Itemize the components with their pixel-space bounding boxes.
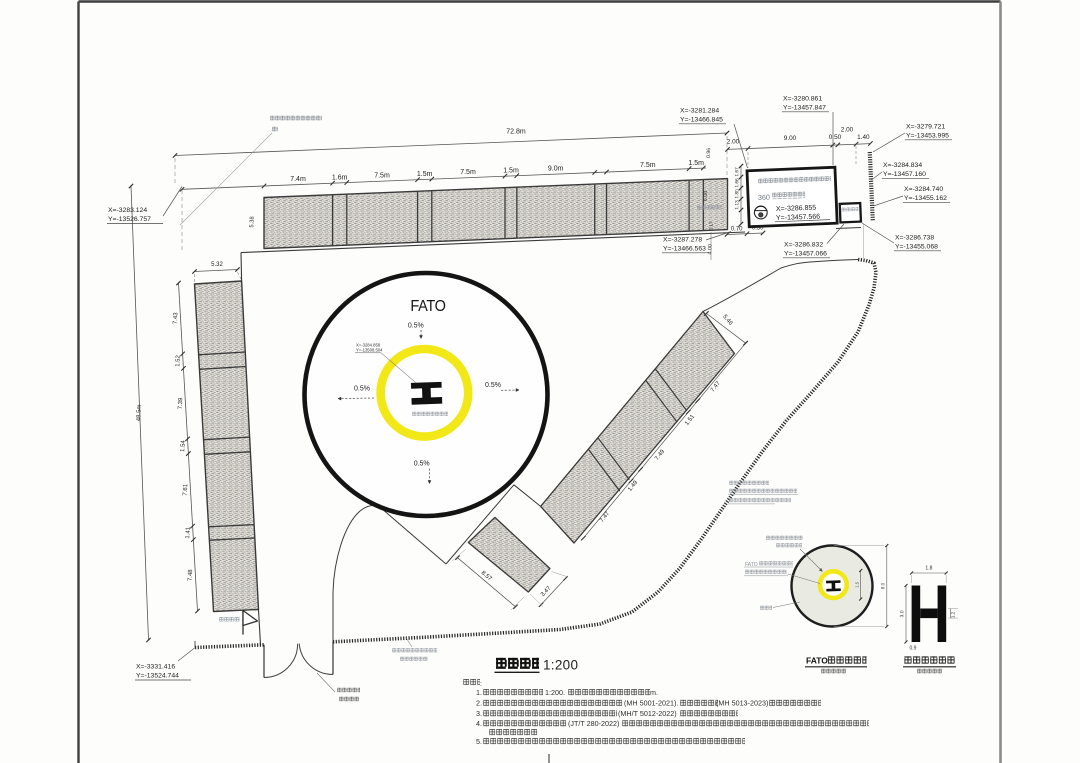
svg-text:48.5m: 48.5m	[136, 404, 143, 421]
svg-text:1.66: 1.66	[734, 178, 740, 188]
svg-text:7.48: 7.48	[188, 569, 195, 582]
svg-text:7.5m: 7.5m	[460, 169, 476, 176]
svg-text:2.00: 2.00	[841, 127, 854, 134]
svg-text:X=-3281.284: X=-3281.284	[680, 108, 719, 115]
svg-text:0.5%: 0.5%	[414, 461, 430, 468]
svg-text:1.5m: 1.5m	[417, 171, 433, 178]
svg-text:1.6m: 1.6m	[332, 174, 348, 181]
svg-text:1.8: 1.8	[925, 566, 932, 572]
svg-text:Y=-13455.068: Y=-13455.068	[895, 243, 938, 250]
svg-text:0.50: 0.50	[829, 134, 842, 141]
svg-text:7.39: 7.39	[178, 397, 185, 410]
svg-text:4.: 4.	[476, 719, 482, 728]
svg-text:X=-3286.738: X=-3286.738	[895, 235, 934, 242]
svg-text:Y=-13457.160: Y=-13457.160	[883, 171, 926, 178]
svg-text:Y=-13455.162: Y=-13455.162	[904, 195, 947, 202]
svg-text:0.5%: 0.5%	[354, 386, 370, 393]
svg-text:1:200: 1:200	[543, 658, 578, 673]
svg-text:(MH 5013-2023): (MH 5013-2023)	[716, 699, 768, 708]
svg-text:1.54: 1.54	[180, 440, 187, 453]
svg-text:5.38: 5.38	[249, 216, 255, 227]
svg-text:X=-3280.861: X=-3280.861	[783, 96, 822, 103]
svg-text:72.8m: 72.8m	[506, 129, 526, 136]
svg-text:1.5m: 1.5m	[688, 160, 704, 167]
svg-text:7.61: 7.61	[183, 483, 190, 496]
svg-text:(MH 5001-2021).: (MH 5001-2021).	[624, 699, 678, 708]
svg-text:7.4m: 7.4m	[290, 176, 306, 183]
svg-text:X=-3283.124: X=-3283.124	[108, 207, 147, 214]
svg-text:360: 360	[758, 193, 770, 202]
svg-text:0.96: 0.96	[706, 148, 712, 158]
svg-text:Y=-13453.995: Y=-13453.995	[906, 132, 949, 139]
svg-text:0.17: 0.17	[708, 221, 713, 231]
svg-text:9.0m: 9.0m	[548, 166, 564, 173]
svg-text:3.: 3.	[476, 709, 482, 718]
svg-text:X=-3284.740: X=-3284.740	[904, 186, 943, 193]
svg-text:0.30: 0.30	[752, 226, 764, 232]
svg-text:1.13: 1.13	[734, 200, 740, 210]
svg-text:X=-3331.416: X=-3331.416	[136, 664, 175, 671]
svg-text:0.9: 0.9	[910, 646, 917, 652]
svg-text:2.: 2.	[476, 699, 482, 708]
svg-text:1.80: 1.80	[734, 189, 740, 199]
svg-text:1.2: 1.2	[950, 611, 955, 618]
svg-text:0.70: 0.70	[731, 227, 743, 233]
svg-text:X=-3284.834: X=-3284.834	[883, 162, 922, 169]
svg-text:5.32: 5.32	[211, 262, 223, 268]
svg-text:6.00: 6.00	[703, 191, 709, 202]
svg-text:FATO: FATO	[410, 297, 446, 315]
svg-text:7.5m: 7.5m	[640, 162, 656, 169]
svg-text:X=-3287.278: X=-3287.278	[663, 237, 702, 244]
svg-text:1.40: 1.40	[857, 134, 870, 141]
svg-text:2.00: 2.00	[727, 138, 740, 145]
svg-text:3.0: 3.0	[899, 610, 905, 617]
svg-text:1.67: 1.67	[734, 167, 740, 177]
svg-text:9.00: 9.00	[784, 135, 797, 142]
svg-text:0.5%: 0.5%	[408, 323, 424, 330]
svg-text:1.5: 1.5	[854, 581, 859, 588]
svg-text:m.: m.	[650, 688, 658, 697]
svg-text:Y=-13466.563: Y=-13466.563	[663, 245, 706, 252]
svg-text:Y=-13457.066: Y=-13457.066	[784, 250, 827, 257]
svg-text:8.0: 8.0	[880, 582, 885, 589]
svg-text:Y=-13466.845: Y=-13466.845	[680, 116, 723, 123]
svg-text:X=-3279.721: X=-3279.721	[906, 124, 945, 131]
svg-text:7.43: 7.43	[173, 312, 180, 325]
svg-text:X=-3286.832: X=-3286.832	[784, 242, 823, 249]
svg-text:Y=-13524.744: Y=-13524.744	[136, 673, 179, 680]
svg-text:7.5m: 7.5m	[374, 173, 390, 180]
svg-text:FATO: FATO	[806, 656, 828, 666]
svg-text:Y=-13526.757: Y=-13526.757	[108, 216, 151, 223]
svg-text:Y=-13508.504: Y=-13508.504	[356, 348, 383, 353]
svg-text:1:200.: 1:200.	[545, 688, 565, 697]
svg-text:X=-3286.855: X=-3286.855	[776, 205, 817, 213]
svg-text:(JT/T 280-2022): (JT/T 280-2022)	[568, 719, 619, 728]
svg-text:1.5m: 1.5m	[503, 167, 519, 174]
svg-text:1.41: 1.41	[185, 526, 192, 539]
svg-text:1.: 1.	[476, 688, 482, 697]
svg-text:0.5%: 0.5%	[485, 382, 501, 389]
svg-text:1.52: 1.52	[175, 354, 182, 367]
svg-text:(MH/T 5012-2022): (MH/T 5012-2022)	[618, 709, 677, 718]
svg-text:Y=-13457.847: Y=-13457.847	[783, 104, 826, 111]
svg-text:5.: 5.	[476, 737, 482, 746]
